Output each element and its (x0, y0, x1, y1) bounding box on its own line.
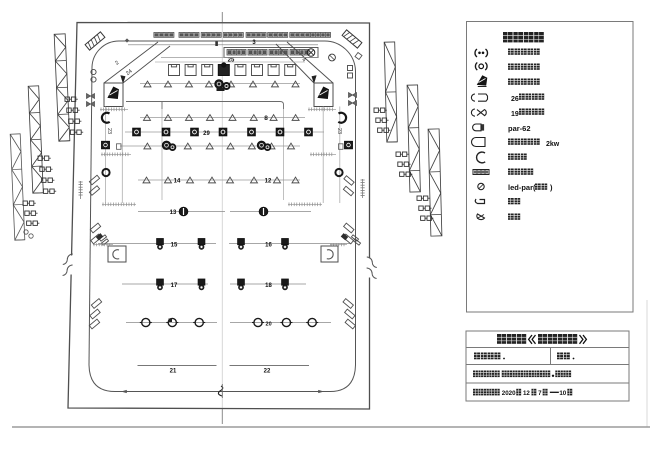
svg-text:18: 18 (265, 283, 272, 289)
svg-text:23: 23 (106, 128, 112, 134)
svg-text:12: 12 (265, 179, 272, 185)
svg-text:15: 15 (171, 243, 178, 249)
svg-text:led-par(: led-par( (508, 183, 536, 192)
svg-text:2kw: 2kw (546, 141, 560, 148)
svg-text:20: 20 (266, 322, 272, 328)
svg-text:14: 14 (174, 179, 181, 185)
svg-text:22: 22 (264, 368, 271, 374)
svg-text:26: 26 (511, 96, 519, 103)
svg-text:2020: 2020 (502, 390, 516, 397)
svg-text:23: 23 (336, 128, 342, 134)
svg-text:19: 19 (511, 111, 519, 118)
svg-text:17: 17 (171, 283, 178, 289)
svg-text:8: 8 (264, 115, 268, 122)
svg-text:10: 10 (559, 390, 566, 397)
svg-text:par-62: par-62 (508, 124, 531, 133)
svg-text:25: 25 (228, 58, 235, 64)
svg-text:7: 7 (538, 390, 542, 397)
svg-text:16: 16 (265, 243, 272, 249)
svg-text:13: 13 (170, 210, 177, 216)
svg-text:29: 29 (203, 131, 210, 137)
svg-text:21: 21 (170, 368, 177, 374)
svg-text:12: 12 (523, 390, 530, 397)
